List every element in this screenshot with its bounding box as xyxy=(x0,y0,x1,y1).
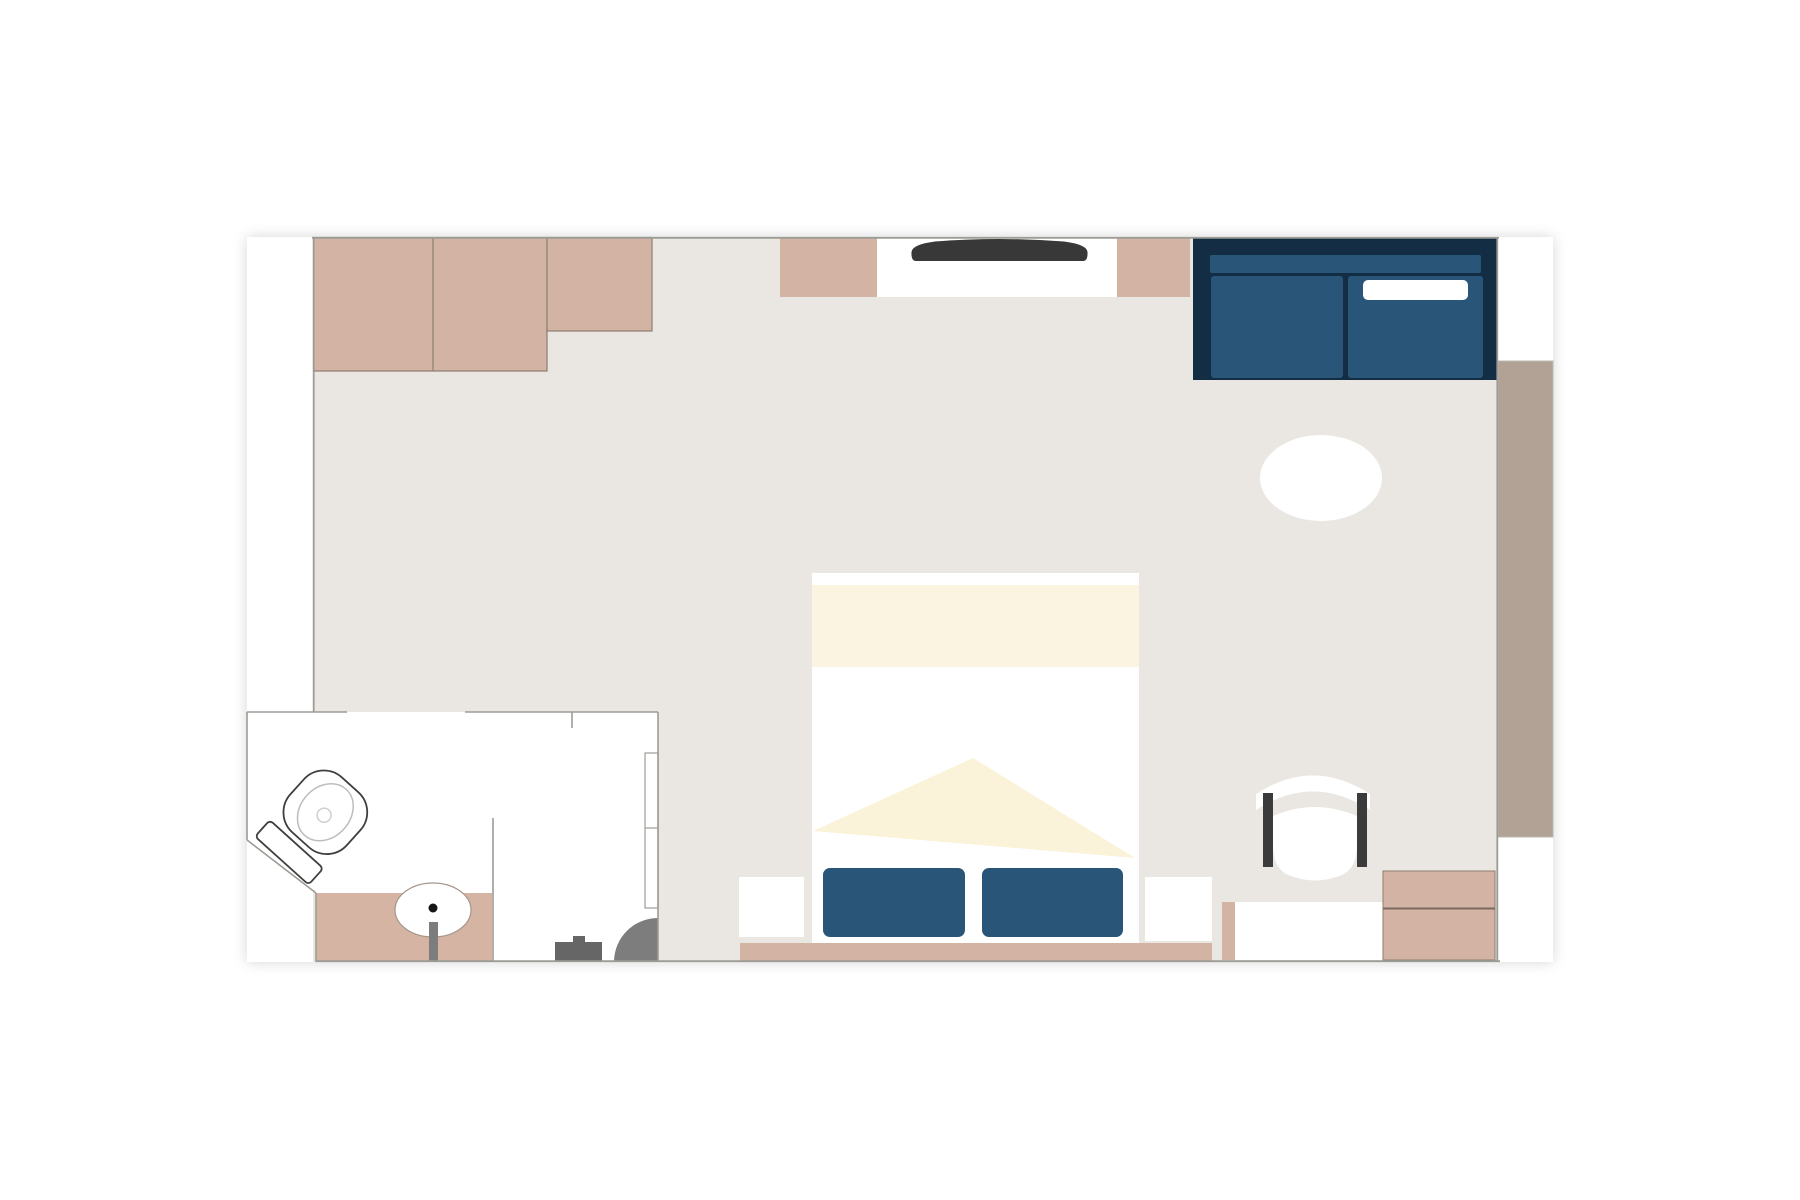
console-bench xyxy=(1235,902,1383,960)
wardrobe-unit-small xyxy=(547,238,652,332)
floor-plan-screenshot xyxy=(0,0,1800,1200)
wardrobe-unit-left xyxy=(314,238,548,372)
navy-sofa xyxy=(1193,238,1498,380)
sofa-white-pillow xyxy=(1363,280,1468,300)
double-bed xyxy=(812,573,1139,943)
faucet xyxy=(429,904,438,913)
nightstand-left xyxy=(739,877,804,937)
armchair-armrest-left xyxy=(1263,793,1273,867)
shower-sliding-panel xyxy=(645,753,658,908)
headboard-bench-strip xyxy=(740,943,1212,962)
bed-pillow-left xyxy=(823,868,965,937)
dresser-stack xyxy=(1383,871,1495,960)
oval-side-table xyxy=(1260,435,1382,521)
sink-drain-bar xyxy=(429,922,438,961)
floor-plan-canvas xyxy=(0,0,1800,1200)
sofa-cushion-left xyxy=(1211,276,1343,378)
armchair-armrest-right xyxy=(1357,793,1367,867)
armchair-seat xyxy=(1273,807,1357,881)
balcony-deck xyxy=(1498,361,1553,837)
sofa-back-rail xyxy=(1210,255,1481,273)
wall-pillar-left xyxy=(780,238,877,297)
wall-pillar-right xyxy=(1117,238,1190,297)
bed-foot-band xyxy=(812,585,1139,667)
console-side-panel xyxy=(1222,902,1235,960)
wall-tv xyxy=(911,239,1087,261)
bed-pillow-right xyxy=(982,868,1123,937)
nightstand-right xyxy=(1145,877,1212,941)
